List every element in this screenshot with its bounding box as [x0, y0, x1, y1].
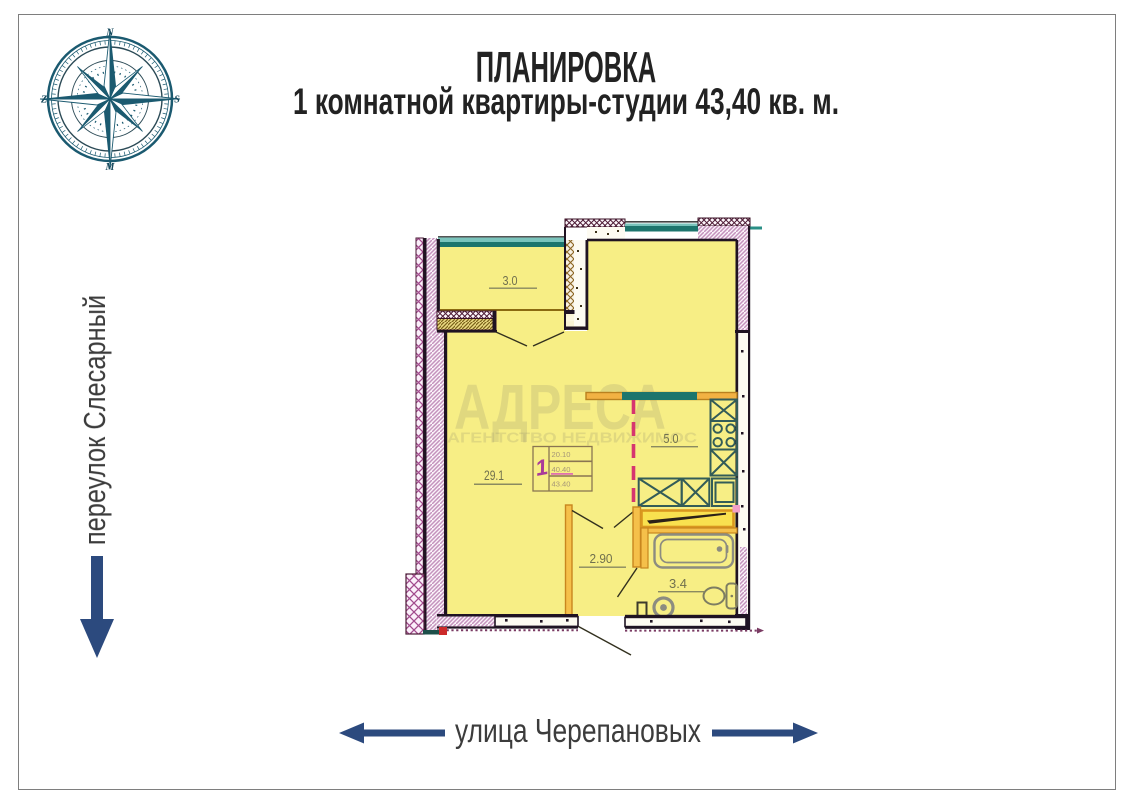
- svg-text:Z: Z: [40, 95, 47, 106]
- svg-text:N: N: [105, 28, 114, 39]
- svg-text:5.0: 5.0: [664, 431, 679, 446]
- svg-text:3.4: 3.4: [669, 577, 687, 591]
- svg-text:АГЕНТСТВО НЕДВИЖИМОС: АГЕНТСТВО НЕДВИЖИМОС: [447, 431, 698, 447]
- svg-text:43.40: 43.40: [552, 480, 571, 489]
- svg-text:3.0: 3.0: [503, 273, 518, 288]
- svg-text:S: S: [174, 95, 180, 106]
- svg-text:40.40: 40.40: [552, 465, 571, 474]
- svg-text:M: M: [105, 162, 116, 173]
- svg-text:20.10: 20.10: [552, 450, 571, 459]
- svg-text:2.90: 2.90: [590, 551, 613, 566]
- svg-text:29.1: 29.1: [484, 468, 504, 483]
